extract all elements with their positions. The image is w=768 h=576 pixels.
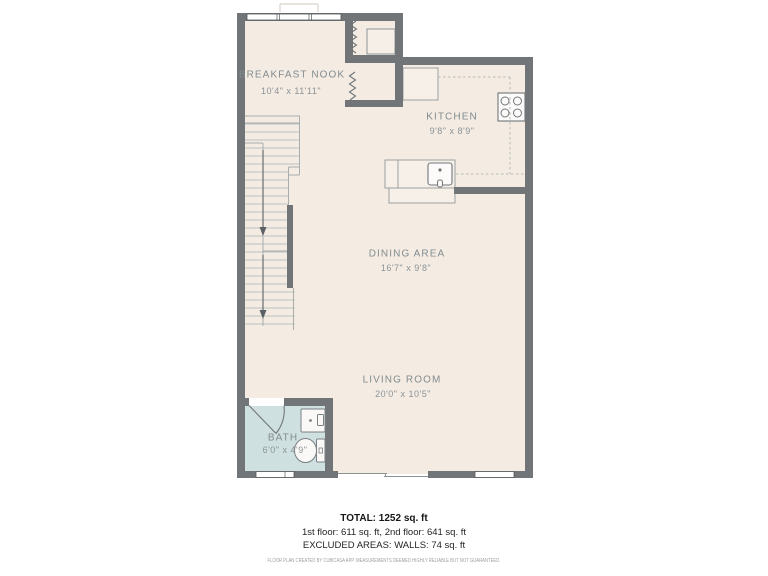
wall-closet-mid: [345, 55, 403, 63]
room-label-dining-area: DINING AREA: [369, 249, 446, 260]
kitchen-faucet-icon: [438, 168, 441, 171]
faucet-icon: [309, 419, 312, 422]
floor-plan-drawing: [0, 0, 768, 576]
kitchen-counter-peninsula: [389, 188, 455, 203]
total-area: TOTAL: 1252 sq. ft: [0, 512, 768, 526]
wall-right: [525, 57, 533, 478]
room-label-living-room: LIVING ROOM: [363, 375, 442, 386]
kitchen-counter-entry: [403, 68, 438, 100]
stove-body: [498, 93, 525, 121]
floor-plan-page: BREAKFAST NOOK 10'4" x 11'11" KITCHEN 9'…: [0, 0, 768, 576]
wall-stair-side: [287, 205, 293, 288]
room-label-bath: BATH: [268, 433, 298, 444]
stove: [498, 93, 525, 121]
room-dims-bath: 6'0" x 4'9": [263, 445, 308, 455]
floor-areas: 1st floor: 611 sq. ft, 2nd floor: 641 sq…: [0, 526, 768, 539]
excluded-areas: EXCLUDED AREAS: WALLS: 74 sq. ft: [0, 539, 768, 552]
kitchen-sink-counter: [385, 160, 455, 188]
room-dims-kitchen: 9'8" x 8'9": [430, 126, 475, 136]
refrigerator: [367, 29, 395, 54]
wall-closet-bottom: [345, 100, 403, 107]
wall-bath-right: [325, 398, 333, 471]
wall-left: [237, 13, 245, 478]
room-dims-dining-area: 16'7" x 9'8": [381, 263, 431, 273]
room-label-kitchen: KITCHEN: [426, 112, 478, 123]
window-bath: [256, 472, 294, 478]
bathroom-sink: [301, 409, 325, 432]
toilet-tank: [317, 439, 326, 462]
wall-kitchen-dining: [454, 187, 533, 194]
window-living-room: [475, 472, 514, 478]
wall-kitchen-top: [395, 57, 533, 65]
kitchen-sink-drain: [438, 180, 443, 187]
room-label-breakfast-nook: BREAKFAST NOOK: [239, 70, 345, 81]
exterior-stoop-outline: [280, 4, 318, 12]
disclaimer: FLOOR PLAN CREATED BY CUBICASA APP. MEAS…: [69, 558, 699, 564]
bath-door-opening: [249, 398, 284, 406]
room-dims-breakfast-nook: 10'4" x 11'11": [261, 86, 321, 96]
window-breakfast-nook: [247, 14, 341, 20]
area-summary: TOTAL: 1252 sq. ft 1st floor: 611 sq. ft…: [0, 512, 768, 564]
room-dims-living-room: 20'0" x 10'5": [375, 389, 431, 399]
vanity: [301, 409, 325, 432]
